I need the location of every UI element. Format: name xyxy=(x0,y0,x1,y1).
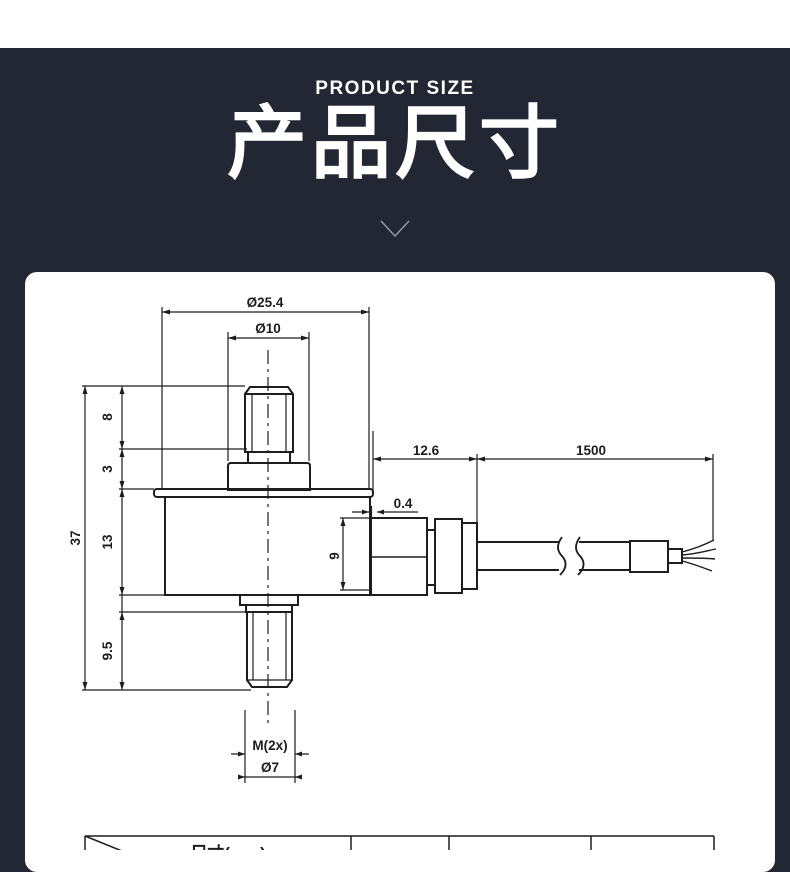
product-size-card xyxy=(25,272,775,872)
top-white-strip xyxy=(0,0,790,48)
section-subtitle-en: PRODUCT SIZE xyxy=(0,78,790,100)
chevron-down-icon xyxy=(370,214,420,244)
section-title-cn: 产品尺寸 xyxy=(0,100,790,188)
